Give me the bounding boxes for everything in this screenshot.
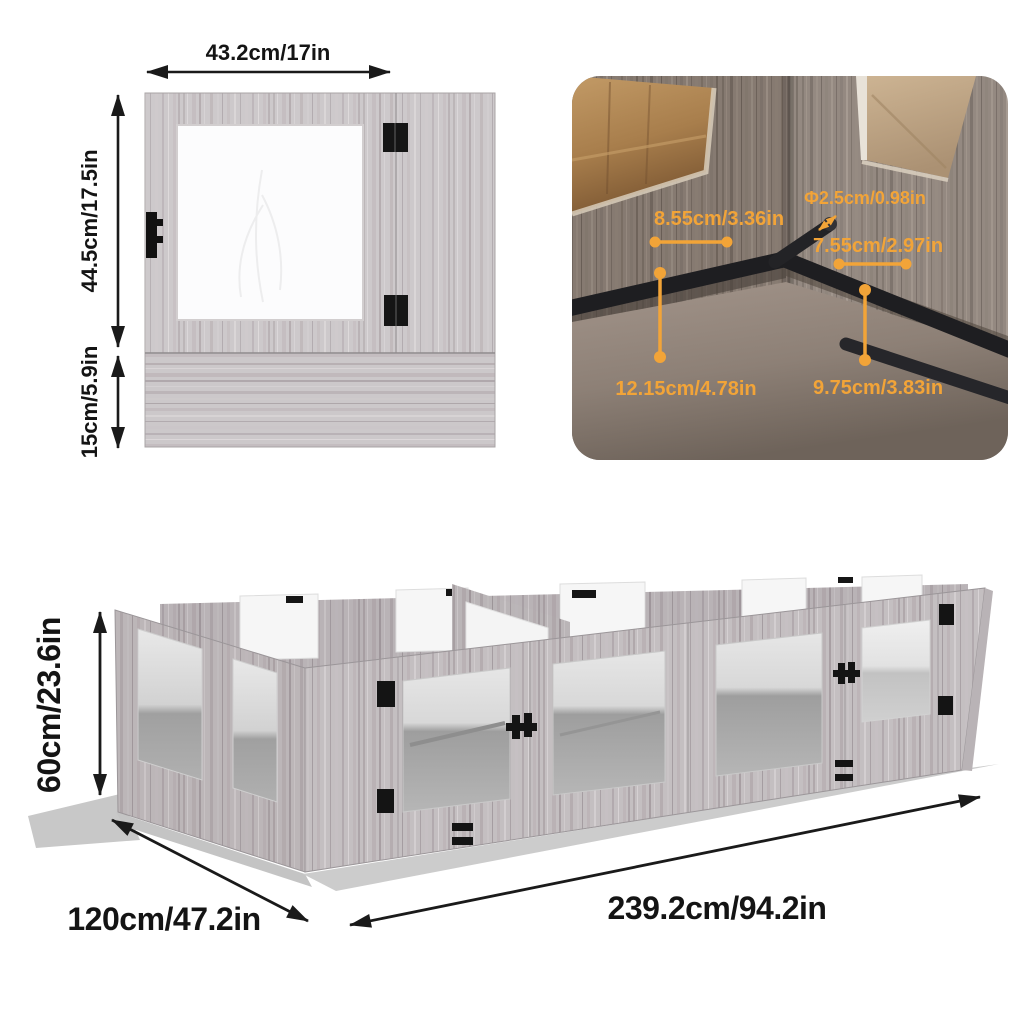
connector-slot-icon — [452, 823, 473, 831]
panel-lower-height-label: 15cm/5.9in — [77, 346, 102, 459]
pen-height-label: 60cm/23.6in — [31, 617, 67, 793]
panel-width-label: 43.2cm/17in — [206, 40, 331, 65]
product-dimension-sheet: 43.2cm/17in 44.5cm/17.5in 15cm/5.9in — [0, 0, 1020, 1020]
window-pane — [233, 659, 277, 802]
window-pane — [138, 629, 202, 780]
right-bar-length-label: 7.55cm/2.97in — [813, 235, 943, 257]
panel-front-diagram: 43.2cm/17in 44.5cm/17.5in 15cm/5.9in — [77, 40, 495, 458]
hinge-icon — [939, 604, 954, 625]
door-window-pane — [862, 620, 930, 722]
window-pane — [716, 633, 822, 776]
pen-length-label: 239.2cm/94.2in — [608, 890, 827, 926]
connector-slot-icon — [452, 837, 473, 845]
left-height-label: 12.15cm/4.78in — [615, 378, 756, 400]
hinge-icon — [383, 123, 408, 152]
panel-window-pane — [177, 125, 363, 320]
hinge-icon — [377, 681, 395, 707]
panel-upper-height-label: 44.5cm/17.5in — [77, 149, 102, 292]
diameter-label: Φ2.5cm/0.98in — [804, 188, 926, 208]
assembled-pen-diagram: 60cm/23.6in 120cm/47.2in 239.2cm/94.2in — [28, 575, 999, 937]
pen-depth-label: 120cm/47.2in — [67, 901, 260, 937]
connector-slot-icon — [835, 760, 853, 767]
corner-detail-photo: Φ2.5cm/0.98in 8.55cm/3.36in 7.55cm/2.97i… — [566, 76, 1010, 460]
hinge-icon — [377, 789, 394, 813]
hinge-icon — [384, 295, 408, 326]
product-dimension-diagram: 43.2cm/17in 44.5cm/17.5in 15cm/5.9in — [0, 0, 1020, 1020]
left-bar-length-label: 8.55cm/3.36in — [654, 208, 784, 230]
hinge-icon — [938, 696, 953, 715]
door-window-pane — [403, 668, 510, 812]
connector-slot-icon — [835, 774, 853, 781]
right-height-label: 9.75cm/3.83in — [813, 377, 943, 399]
